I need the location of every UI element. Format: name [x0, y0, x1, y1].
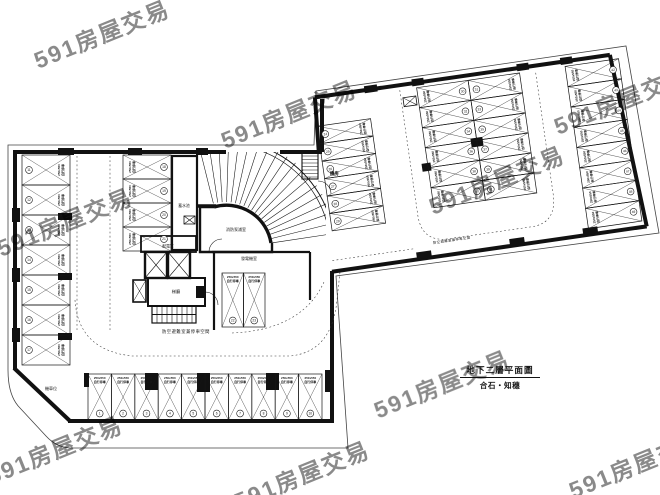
stall-type: 自行停車	[60, 344, 65, 356]
stall-number: 7	[239, 412, 241, 416]
watermark-text: 591房屋交易	[0, 411, 127, 489]
watermark-text: 591房屋交易	[425, 141, 569, 219]
stall-number: 21	[162, 237, 166, 241]
stall-label: 250x550自行停車	[281, 376, 293, 384]
fire-pump-room-label: 消防泵浦室	[226, 226, 246, 232]
door-arc	[205, 292, 218, 305]
stall-type: 自行停車	[140, 379, 152, 384]
stall-label: 250x550自行停車	[582, 150, 592, 163]
stall-label: 250x550自行停車	[573, 89, 583, 102]
stall-label: 250x550自行停車	[211, 376, 223, 384]
stall-label: 250x550自行停車	[433, 170, 443, 183]
stall-type: 自行停車	[60, 284, 65, 296]
parking-stall: 250x550自行停車32	[419, 100, 473, 127]
stall-number: 8	[263, 412, 265, 416]
floorplan-page: { "title_block": { "drawing_title": "地下二…	[0, 0, 660, 495]
stall-type: 自行停車	[94, 379, 106, 384]
stall-number: 9	[286, 412, 288, 416]
stall-number: 14	[27, 258, 31, 262]
stall-label: 250x550自行停車	[368, 192, 378, 205]
stall-label: 250x550自行停車	[570, 69, 580, 82]
stall-type: 自行停車	[248, 278, 260, 283]
parking-stall: 250x550自行停車18	[123, 155, 171, 179]
stall-number: 6	[216, 412, 218, 416]
stall-label: 250x550自行停車	[370, 209, 380, 222]
watermark-text: 591房屋交易	[0, 183, 137, 261]
stall-type: 自行停車	[117, 379, 129, 384]
machine-room-label: 機房	[330, 170, 339, 177]
stall-label: 250x550自行停車	[57, 194, 65, 206]
stall-label: 250x550自行停車	[365, 174, 375, 187]
stall-label: 250x550自行停車	[227, 275, 239, 283]
parking-stall: 250x550自行停車35	[474, 113, 528, 140]
stall-number: 12	[27, 198, 31, 202]
stall-type: 自行停車	[227, 278, 239, 283]
stall-number: 22	[231, 319, 235, 323]
stall-type: 自行停車	[60, 164, 65, 176]
stall-number: 19	[162, 189, 166, 193]
stall-number: 17	[27, 348, 31, 352]
stall-number: 16	[27, 318, 31, 322]
project-name: 合石・知穗	[480, 380, 520, 390]
right-wing: 防空避難室兼停車空間 250x550自行停車24250x550自行停車25250…	[306, 49, 646, 272]
parking-stall: 250x550自行停車47	[580, 160, 636, 188]
stall-number: 31	[474, 87, 478, 92]
junction-stair	[302, 152, 331, 194]
stall-number: 11	[27, 168, 31, 172]
stall-label: 250x550自行停車	[257, 376, 269, 384]
parking-stall: 250x550自行停車34	[422, 120, 476, 147]
stall-type: 自行停車	[281, 379, 293, 384]
parking-stall: 250x550自行停車17	[22, 335, 70, 365]
parking-stall: 250x550自行停車7	[228, 374, 251, 420]
stall-number: 27	[331, 184, 335, 189]
stall-type: 自行停車	[304, 379, 316, 384]
stall-label: 250x550自行停車	[588, 190, 598, 203]
parking-stall: 250x550自行停車33	[471, 93, 525, 120]
stall-number: 25	[326, 149, 330, 154]
stall-type: 自行停車	[211, 379, 223, 384]
parking-stall: 250x550自行停車11	[22, 155, 70, 185]
stall-label: 250x550自行停車	[248, 275, 260, 283]
water-tank-label: 蓄水池	[178, 203, 190, 208]
watermark-text: 591房屋交易	[217, 75, 361, 153]
stall-label: 250x550自行停車	[358, 122, 368, 135]
stall-number: 24	[323, 132, 327, 137]
stall-label: 250x550自行停車	[579, 129, 589, 142]
stall-label: 250x550自行停車	[128, 233, 136, 245]
floorplan-drawing: 250x550自行停車1250x550自行停車2250x550自行停車3250x…	[0, 0, 660, 495]
stall-type: 自行停車	[131, 209, 136, 221]
stall-number: 28	[333, 202, 337, 207]
stall-number: 18	[162, 165, 166, 169]
stall-number: 34	[466, 129, 470, 134]
generator-room	[212, 252, 310, 330]
stall-label: 250x550自行停車	[431, 150, 441, 163]
stall-label: 250x550自行停車	[187, 376, 199, 384]
shelter-parking-label: 防空避難室兼停車空間	[433, 235, 471, 245]
stall-label: 250x550自行停車	[128, 161, 136, 173]
stall-number: 4	[169, 412, 171, 416]
stall-label: 250x550自行停車	[117, 376, 129, 384]
shelter-parking-label: 防空避難室兼停車空間	[162, 328, 210, 335]
stall-label: 250x550自行停車	[510, 98, 520, 111]
watermark-text: 591房屋交易	[565, 425, 660, 495]
power-room-label: 配電室	[162, 244, 174, 249]
elevator-shafts	[145, 252, 190, 278]
stall-label: 250x550自行停車	[140, 376, 152, 384]
stall-label: 250x550自行停車	[516, 138, 526, 151]
elevator-lobby-label: 梯廳	[172, 288, 181, 295]
parking-stall: 250x550自行停車4	[158, 374, 181, 420]
stall-number: 38	[472, 169, 476, 174]
stall-label: 250x550自行停車	[304, 376, 316, 384]
stall-number: 30	[461, 89, 465, 94]
stall-label: 250x550自行停車	[57, 164, 65, 176]
stall-number: 36	[469, 149, 473, 154]
parking-stall: 250x550自行停車10	[299, 374, 322, 420]
ramp-inner-wall	[214, 205, 271, 243]
stall-number: 49	[631, 210, 635, 215]
stall-label: 250x550自行停車	[57, 284, 65, 296]
parking-stall: 250x550自行停車22	[222, 273, 244, 327]
core-stair	[152, 306, 196, 323]
parking-stall: 250x550自行停車46	[577, 140, 633, 168]
left-block: 250x550自行停車1250x550自行停車2250x550自行停車3250x…	[12, 99, 340, 422]
stall-number: 47	[626, 169, 630, 174]
parking-stall: 250x550自行停車49	[586, 201, 642, 229]
stall-number: 2	[122, 412, 124, 416]
stall-number: 23	[252, 319, 256, 323]
door-arc	[209, 239, 222, 252]
parking-stall: 250x550自行停車9	[275, 374, 298, 420]
stall-number: 29	[336, 219, 340, 224]
stall-label: 250x550自行停車	[513, 118, 523, 131]
parking-stall: 250x550自行停車31	[468, 73, 522, 100]
parking-stall: 250x550自行停車8	[252, 374, 275, 420]
stall-label: 250x550自行停車	[585, 170, 595, 183]
stall-type: 自行停車	[131, 233, 136, 245]
stall-type: 自行停車	[187, 379, 199, 384]
stall-label: 250x550自行停車	[94, 376, 106, 384]
parking-stall: 250x550自行停車30	[417, 80, 471, 107]
generator-room-label: 發電機室	[241, 255, 257, 261]
stall-type: 自行停車	[131, 161, 136, 173]
parking-stall: 250x550自行停車5	[182, 374, 205, 420]
stall-label: 250x550自行停車	[507, 78, 517, 91]
stall-label: 250x550自行停車	[425, 110, 435, 123]
stall-label: 250x550自行停車	[360, 139, 370, 152]
stall-type: 自行停車	[60, 314, 65, 326]
stall-number: 15	[27, 288, 31, 292]
watermark-text: 591房屋交易	[30, 0, 174, 74]
stall-type: 自行停車	[60, 194, 65, 206]
stall-number: 3	[146, 412, 148, 416]
parking-stall: 250x550自行停車3	[135, 374, 158, 420]
stall-number: 32	[463, 109, 467, 114]
stall-label: 250x550自行停車	[57, 344, 65, 356]
stall-label: 250x550自行停車	[591, 211, 601, 224]
stall-label: 250x550自行停車	[57, 254, 65, 266]
parking-stall: 250x550自行停車6	[205, 374, 228, 420]
stall-number: 33	[477, 107, 481, 112]
stall-type: 自行停車	[60, 254, 65, 266]
stall-number: 42	[611, 68, 615, 73]
stall-label: 250x550自行停車	[363, 157, 373, 170]
stall-number: 20	[162, 213, 166, 217]
stall-number: 1	[99, 412, 101, 416]
stall-number: 45	[620, 129, 624, 134]
pipe-shaft-x	[133, 280, 146, 302]
parking-stall: 250x550自行停車16	[22, 305, 70, 335]
stall-number: 35	[480, 127, 484, 132]
stall-number: 48	[629, 189, 633, 194]
motorcycle-label: 機車位	[45, 385, 57, 391]
stall-label: 250x550自行停車	[422, 90, 432, 103]
stall-number: 5	[192, 412, 194, 416]
stall-label: 250x550自行停車	[234, 376, 246, 384]
stall-number: 10	[308, 412, 312, 416]
watermark-text: 591房屋交易	[550, 61, 660, 139]
parking-stall: 250x550自行停車48	[583, 180, 639, 208]
watermark-text: 591房屋交易	[230, 436, 374, 495]
parking-stall: 250x550自行停車15	[22, 275, 70, 305]
stall-number: 37	[483, 147, 487, 152]
stall-type: 自行停車	[257, 379, 269, 384]
parking-stall: 250x550自行停車1	[88, 374, 111, 420]
stall-label: 250x550自行停車	[57, 314, 65, 326]
stall-type: 自行停車	[234, 379, 246, 384]
stall-number: 46	[623, 149, 627, 154]
parking-stall: 250x550自行停車23	[244, 273, 266, 327]
stall-label: 250x550自行停車	[428, 130, 438, 143]
stall-type: 自行停車	[164, 379, 176, 384]
stall-label: 250x550自行停車	[164, 376, 176, 384]
parking-stall: 250x550自行停車29	[330, 206, 386, 231]
